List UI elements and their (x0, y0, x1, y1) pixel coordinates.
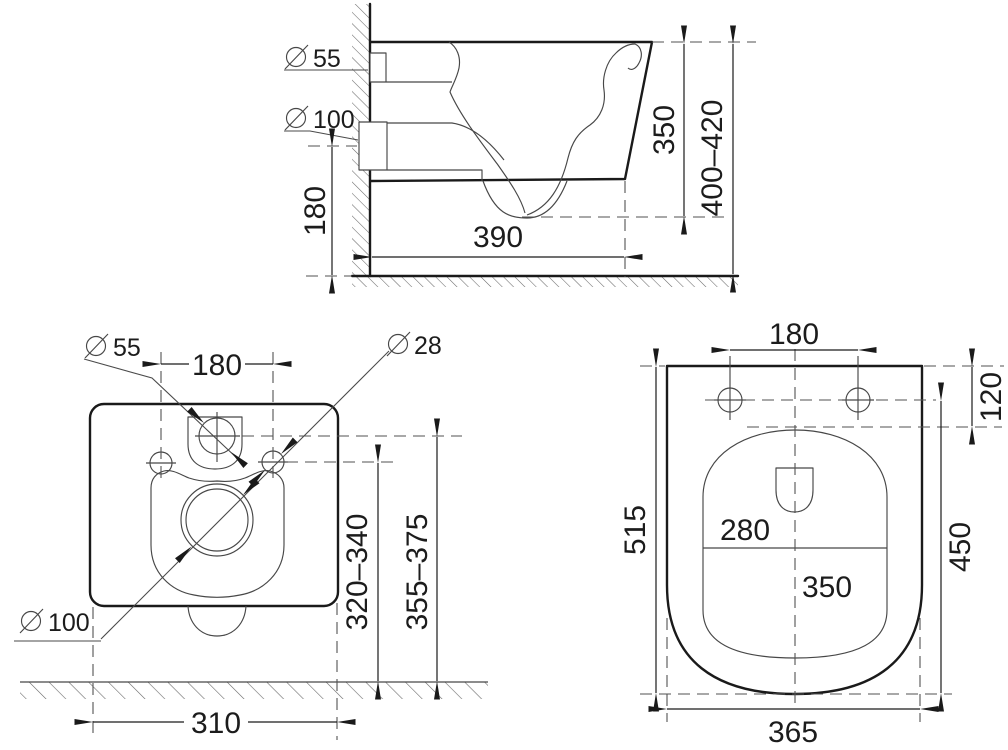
side-body-height-value: 350 (648, 105, 681, 155)
rear-inlet-diameter-callout: 55 (85, 334, 141, 362)
plan-total-depth-dimension: 515 (619, 367, 656, 693)
drain-circle-inner (186, 489, 248, 551)
rear-fixing-diameter-value: 28 (414, 332, 442, 360)
rear-inlet-offset-value: 180 (192, 349, 242, 382)
plan-hole-spacing-value: 180 (769, 318, 819, 351)
plan-total-depth-value: 515 (619, 505, 652, 555)
drain-circle-outer (181, 484, 253, 556)
rear-inlet-height-dimension: 355–375 (401, 437, 437, 681)
rear-drain-height-value: 320–340 (341, 514, 374, 631)
plan-bowl-depth-value: 450 (944, 522, 977, 572)
plan-total-width-dimension: 365 (667, 709, 920, 749)
diameter-icon (20, 609, 43, 633)
plan-hole-spacing-dimension: 180 (730, 318, 858, 351)
rear-inlet-height-value: 355–375 (401, 514, 434, 631)
side-bowl-depth-value: 390 (473, 221, 523, 254)
plan-bowl-depth-dimension: 450 (941, 401, 977, 693)
wall-hung-toilet-dimension-drawing: 55 100 180 390 350 4 (0, 0, 1008, 750)
plan-rear-offset-dimension: 120 (972, 367, 1008, 426)
side-drain-height-value: 180 (299, 186, 332, 236)
plan-view: 180 120 515 450 365 280 350 (619, 318, 1008, 749)
rear-width-dimension: 310 (93, 707, 337, 740)
drain-channel-top (387, 123, 504, 160)
rear-drain-height-dimension: 320–340 (341, 463, 378, 681)
toilet-body-outline (371, 42, 652, 181)
rear-fixing-diameter-callout: 28 (387, 332, 442, 360)
side-rim-height-dimension: 400–420 (696, 44, 733, 274)
bowl-inner-left-profile (449, 42, 525, 213)
side-view: 55 100 180 390 350 4 (284, 4, 756, 287)
plan-inner-width-value: 280 (720, 514, 770, 547)
floor-hatch (20, 682, 488, 699)
side-bowl-depth-dimension: 390 (372, 221, 624, 257)
diameter-icon (285, 45, 308, 69)
technical-drawing-page: 55 100 180 390 350 4 (0, 0, 1008, 750)
toilet-body-outline (90, 404, 338, 606)
rear-drain-diameter-callout: 100 (14, 609, 101, 641)
side-drain-diameter-value: 100 (313, 106, 355, 134)
side-drain-diameter-callout: 100 (284, 106, 358, 140)
plan-inner-depth-value: 350 (802, 571, 852, 604)
side-body-height-dimension: 350 (648, 44, 684, 216)
side-inlet-diameter-value: 55 (313, 45, 341, 73)
bowl-inner-right-profile (527, 44, 641, 215)
inlet-pipe-stub (370, 53, 386, 82)
rear-view: 55 28 100 180 310 (14, 332, 488, 740)
drain-pipe-stub (359, 122, 387, 170)
diameter-icon (285, 106, 308, 130)
rear-inlet-diameter-value: 55 (113, 334, 141, 362)
rear-inlet-offset-dimension: 180 (161, 349, 273, 382)
diameter-icon (387, 332, 410, 356)
trap-protrusion (188, 606, 246, 636)
side-drain-height-dimension: 180 (299, 147, 332, 275)
bowl-outline (151, 471, 284, 598)
rear-width-value: 310 (191, 707, 241, 740)
floor-hatch (352, 276, 738, 287)
plan-total-width-value: 365 (768, 716, 818, 749)
drain-diameter-arrows (175, 479, 259, 563)
diameter-icon (85, 334, 108, 358)
side-rim-height-value: 400–420 (696, 100, 729, 217)
plan-rear-offset-value: 120 (975, 372, 1008, 422)
rear-drain-diameter-value: 100 (48, 609, 90, 637)
